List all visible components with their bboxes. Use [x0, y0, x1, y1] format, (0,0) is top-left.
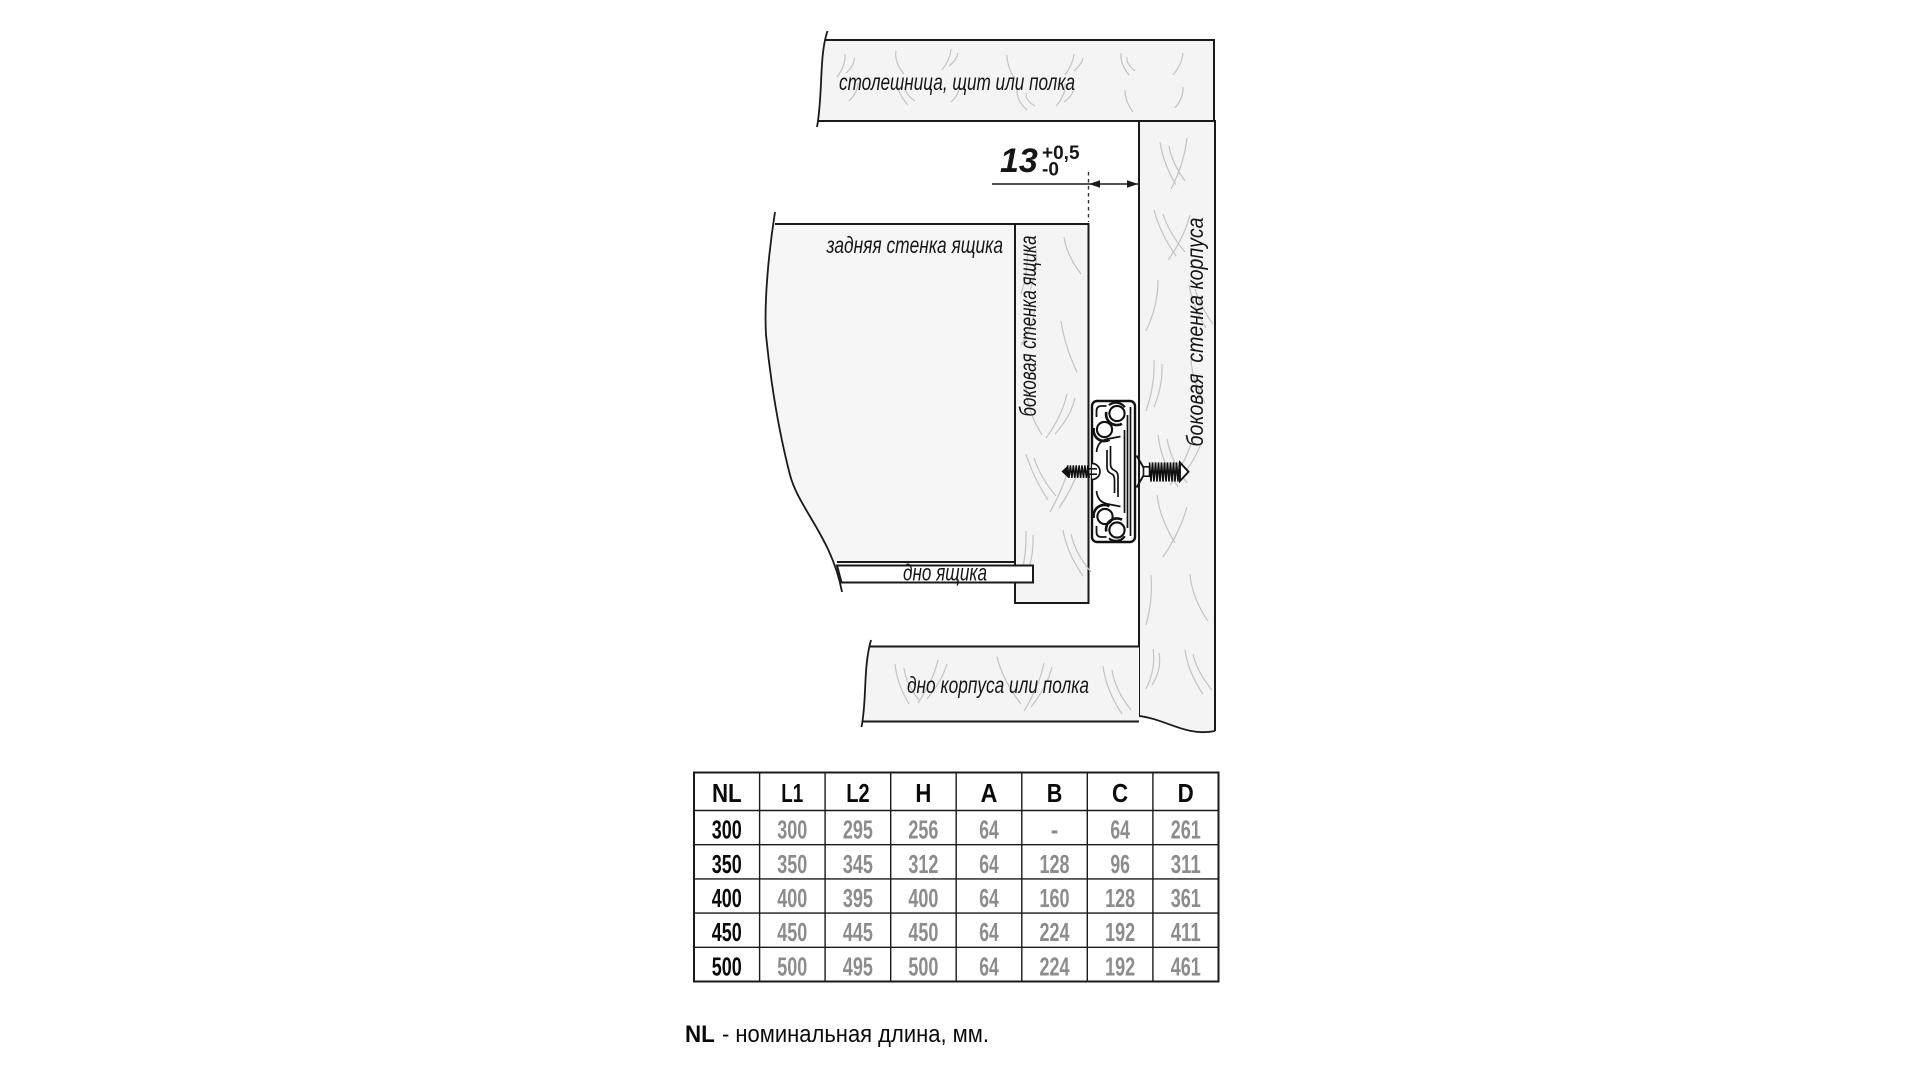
svg-text:96: 96 — [1110, 851, 1130, 879]
svg-text:400: 400 — [712, 885, 742, 913]
svg-text:500: 500 — [777, 953, 807, 981]
svg-text:64: 64 — [1110, 817, 1130, 845]
svg-text:H: H — [915, 778, 931, 808]
svg-text:311: 311 — [1171, 851, 1201, 879]
svg-text:295: 295 — [843, 817, 873, 845]
svg-text:300: 300 — [777, 817, 807, 845]
svg-text:64: 64 — [979, 885, 999, 913]
svg-text:450: 450 — [908, 919, 938, 947]
svg-text:NL: NL — [685, 1021, 715, 1048]
svg-text:445: 445 — [843, 919, 873, 947]
svg-text:13: 13 — [1000, 142, 1038, 180]
svg-text:боковая стенка ящика: боковая стенка ящика — [1015, 236, 1041, 417]
svg-text:350: 350 — [777, 851, 807, 879]
svg-text:461: 461 — [1171, 953, 1201, 981]
svg-text:500: 500 — [908, 953, 938, 981]
svg-text:64: 64 — [979, 919, 999, 947]
svg-text:64: 64 — [979, 953, 999, 981]
svg-text:400: 400 — [908, 885, 938, 913]
svg-text:495: 495 — [843, 953, 873, 981]
svg-text:192: 192 — [1105, 953, 1135, 981]
svg-text:D: D — [1178, 778, 1194, 808]
svg-text:256: 256 — [908, 817, 938, 845]
svg-text:B: B — [1047, 778, 1063, 808]
svg-text:395: 395 — [843, 885, 873, 913]
svg-text:450: 450 — [712, 919, 742, 947]
svg-text:боковая стенка корпуса: боковая стенка корпуса — [1182, 218, 1208, 447]
svg-text:261: 261 — [1171, 817, 1201, 845]
svg-text:224: 224 — [1040, 953, 1071, 981]
svg-text:411: 411 — [1171, 919, 1201, 947]
svg-text:160: 160 — [1040, 885, 1070, 913]
svg-text:C: C — [1112, 778, 1128, 808]
svg-text:задняя стенка ящика: задняя стенка ящика — [826, 232, 1003, 258]
svg-text:-0: -0 — [1042, 160, 1059, 181]
svg-text:224: 224 — [1040, 919, 1071, 947]
svg-text:361: 361 — [1171, 885, 1201, 913]
svg-text:L2: L2 — [846, 778, 869, 808]
svg-text:345: 345 — [843, 851, 873, 879]
svg-text:столешница, щит или полка: столешница, щит или полка — [839, 69, 1075, 95]
svg-text:L1: L1 — [781, 778, 803, 808]
svg-text:64: 64 — [979, 817, 999, 845]
svg-text:дно корпуса или полка: дно корпуса или полка — [907, 672, 1089, 698]
svg-text:312: 312 — [908, 851, 938, 879]
svg-text:128: 128 — [1040, 851, 1070, 879]
svg-text:128: 128 — [1105, 885, 1135, 913]
svg-text:500: 500 — [712, 953, 742, 981]
svg-text:64: 64 — [979, 851, 999, 879]
svg-text:450: 450 — [777, 919, 807, 947]
svg-text:дно ящика: дно ящика — [903, 560, 987, 586]
svg-text:A: A — [981, 778, 998, 808]
svg-text:350: 350 — [712, 851, 742, 879]
svg-text:192: 192 — [1105, 919, 1135, 947]
svg-text:NL: NL — [712, 778, 742, 808]
svg-text:- номинальная длина, мм.: - номинальная длина, мм. — [722, 1021, 989, 1048]
svg-text:400: 400 — [777, 885, 807, 913]
svg-text:-: - — [1051, 817, 1059, 845]
svg-text:300: 300 — [712, 817, 742, 845]
